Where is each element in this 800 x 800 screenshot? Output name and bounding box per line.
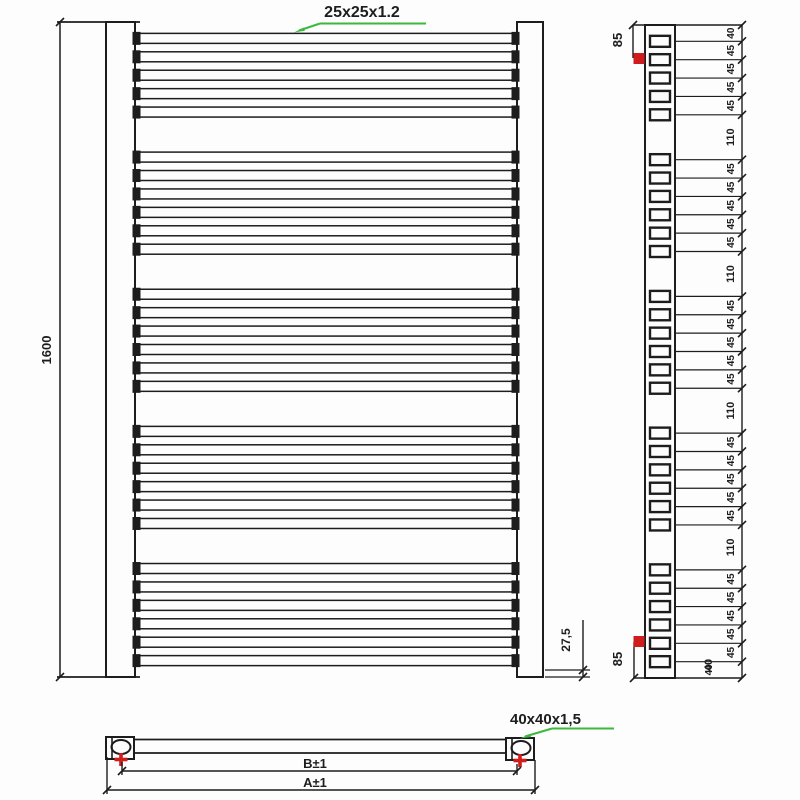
right-mount-cross (514, 759, 527, 763)
front-bar-left-nub (133, 380, 141, 393)
front-bar (135, 564, 517, 574)
b-dimension-label: B±1 (303, 756, 327, 771)
drawing-canvas: 160025x25x1.227,5 4045454545110454545454… (0, 0, 800, 800)
segment-dimension-label: 45 (726, 591, 737, 603)
front-bar (135, 600, 517, 610)
front-bar-right-nub (512, 517, 520, 530)
front-bar-right-nub (512, 361, 520, 374)
front-bar (135, 189, 517, 199)
front-bar-right-nub (512, 636, 520, 649)
tube-size-arrowhead (294, 28, 305, 33)
front-bar (135, 326, 517, 336)
left-mount-cross (115, 758, 128, 762)
height-dimension-label: 1600 (39, 336, 54, 365)
segment-dimension-label: 45 (726, 200, 737, 212)
front-bar-right-nub (512, 106, 520, 119)
segment-dimension-label: 45 (726, 355, 737, 367)
segment-dimension-label: 45 (726, 300, 737, 312)
side-bar (650, 209, 670, 220)
bottom-connection-offset-label: 85 (610, 652, 625, 666)
front-bar-left-nub (133, 462, 141, 475)
front-bar (135, 308, 517, 318)
segment-dimension-label: 45 (726, 510, 737, 522)
front-bar (135, 33, 517, 43)
side-bar (650, 583, 670, 594)
front-bar-left-nub (133, 87, 141, 100)
front-bar (135, 226, 517, 236)
front-bar-right-nub (512, 499, 520, 512)
segment-dimension-label: 45 (726, 63, 737, 75)
front-bar (135, 582, 517, 592)
front-bar-left-nub (133, 151, 141, 164)
front-bar-left-nub (133, 443, 141, 456)
segment-dimension-label: 110 (725, 539, 737, 557)
front-left-tube (106, 22, 135, 677)
side-bar (650, 173, 670, 184)
front-bar-left-nub (133, 224, 141, 237)
side-bar (650, 228, 670, 239)
front-bar (135, 463, 517, 473)
segment-dimension-label: 45 (726, 336, 737, 348)
segment-dimension-label: 110 (725, 265, 737, 283)
front-bar-right-nub (512, 187, 520, 200)
segment-dimension-label: 45 (726, 455, 737, 467)
front-bar-right-nub (512, 69, 520, 82)
front-bar-right-nub (512, 87, 520, 100)
segment-dimension-label: 45 (726, 45, 737, 57)
a-dimension-label: A±1 (303, 775, 327, 790)
segment-dimension-label: 45 (726, 81, 737, 93)
side-bar (650, 483, 670, 494)
front-bar-left-nub (133, 425, 141, 438)
segment-dimension-label: 45 (726, 473, 737, 485)
front-bar (135, 171, 517, 181)
side-bar (650, 601, 670, 612)
front-bar (135, 207, 517, 217)
front-bar-left-nub (133, 69, 141, 82)
radiator-technical-drawing: 160025x25x1.227,5 4045454545110454545454… (0, 0, 800, 800)
side-bar (650, 564, 670, 575)
front-bar (135, 363, 517, 373)
side-bar (650, 109, 670, 120)
segment-dimension-label: 45 (726, 646, 737, 658)
front-bar (135, 426, 517, 436)
front-bar-right-nub (512, 380, 520, 393)
front-bar (135, 637, 517, 647)
front-bar-left-nub (133, 187, 141, 200)
front-bar-left-nub (133, 580, 141, 593)
segment-dimension-label: 45 (726, 236, 737, 248)
front-bar-left-nub (133, 654, 141, 667)
front-bar-left-nub (133, 106, 141, 119)
front-bar-right-nub (512, 480, 520, 493)
front-bar (135, 52, 517, 62)
side-bar (650, 638, 670, 649)
side-bar (650, 154, 670, 165)
front-bar-left-nub (133, 562, 141, 575)
side-bar (650, 36, 670, 47)
front-bar (135, 107, 517, 117)
left-bracket-tube-section (112, 740, 131, 754)
tube-size-label: 25x25x1.2 (324, 4, 400, 21)
segment-dimension-label: 45 (726, 373, 737, 385)
front-bar-right-nub (512, 443, 520, 456)
front-bar-left-nub (133, 599, 141, 612)
segment-dimension-label: 45 (726, 610, 737, 622)
front-bar-right-nub (512, 325, 520, 338)
side-bar (650, 309, 670, 320)
front-bar-right-nub (512, 654, 520, 667)
top-view: B±1A±140x40x1,5 (103, 711, 614, 794)
bottom-connection-marker (634, 636, 645, 647)
segment-dimension-label: 45 (726, 573, 737, 585)
front-bar (135, 500, 517, 510)
side-bar (650, 73, 670, 84)
front-bar-right-nub (512, 288, 520, 301)
front-bar-left-nub (133, 306, 141, 319)
front-bar-right-nub (512, 306, 520, 319)
front-bar-left-nub (133, 288, 141, 301)
front-bar-left-nub (133, 617, 141, 630)
front-bar (135, 518, 517, 528)
segment-dimension-label: 45 (726, 100, 737, 112)
side-bar (650, 364, 670, 375)
front-bar (135, 619, 517, 629)
side-bar (650, 246, 670, 257)
front-bar-right-nub (512, 151, 520, 164)
bracket-size-label: 40x40x1,5 (510, 711, 581, 728)
front-bar-left-nub (133, 32, 141, 45)
segment-dimension-label: 40 (726, 27, 737, 39)
front-bar-right-nub (512, 617, 520, 630)
side-bar (650, 383, 670, 394)
segment-dimension-label: 45 (726, 491, 737, 503)
bottom-gap-label: 40 (703, 659, 715, 671)
front-bar (135, 656, 517, 666)
front-bar-left-nub (133, 517, 141, 530)
front-bar (135, 70, 517, 80)
front-bar-left-nub (133, 636, 141, 649)
side-bar (650, 191, 670, 202)
front-bar (135, 445, 517, 455)
front-bar-right-nub (512, 206, 520, 219)
side-bar (650, 291, 670, 302)
segment-dimension-label: 110 (725, 128, 737, 146)
side-bar (650, 464, 670, 475)
top-connection-offset-label: 85 (610, 33, 625, 47)
front-bar-left-nub (133, 206, 141, 219)
front-bar-right-nub (512, 599, 520, 612)
side-bar (650, 446, 670, 457)
front-bar (135, 89, 517, 99)
front-bar-right-nub (512, 32, 520, 45)
side-bar (650, 54, 670, 65)
front-bar (135, 244, 517, 254)
side-view: 4045454545110454545454511045454545451104… (610, 21, 746, 682)
side-bar (650, 501, 670, 512)
side-bar (650, 346, 670, 357)
segment-dimension-label: 45 (726, 436, 737, 448)
front-view: 160025x25x1.227,5 (39, 4, 590, 681)
front-bar-right-nub (512, 580, 520, 593)
front-bar-right-nub (512, 243, 520, 256)
front-right-tube (517, 22, 543, 677)
side-bar (650, 656, 670, 667)
front-bar-left-nub (133, 480, 141, 493)
side-bar (650, 328, 670, 339)
segment-dimension-label: 45 (726, 318, 737, 330)
front-bar-left-nub (133, 343, 141, 356)
front-bar-left-nub (133, 325, 141, 338)
front-bar-left-nub (133, 50, 141, 63)
segment-dimension-label: 110 (725, 402, 737, 420)
top-connection-marker (634, 53, 645, 64)
side-bar (650, 519, 670, 530)
front-bar-left-nub (133, 499, 141, 512)
front-bar (135, 152, 517, 162)
front-bar-right-nub (512, 169, 520, 182)
front-bar-right-nub (512, 562, 520, 575)
front-bar-right-nub (512, 224, 520, 237)
segment-dimension-label: 45 (726, 181, 737, 193)
bottom-offset-label: 27,5 (559, 628, 573, 652)
right-bracket-tube-section (512, 741, 531, 755)
front-bar (135, 345, 517, 355)
front-bar (135, 381, 517, 391)
front-bar-left-nub (133, 361, 141, 374)
front-bar-left-nub (133, 169, 141, 182)
front-bar (135, 482, 517, 492)
segment-dimension-label: 45 (726, 628, 737, 640)
front-bar (135, 289, 517, 299)
side-bar (650, 619, 670, 630)
front-bar-right-nub (512, 462, 520, 475)
side-bar (650, 428, 670, 439)
front-bar-right-nub (512, 425, 520, 438)
segment-dimension-label: 45 (726, 163, 737, 175)
front-bar-right-nub (512, 50, 520, 63)
segment-dimension-label: 45 (726, 218, 737, 230)
front-bar-left-nub (133, 243, 141, 256)
front-bar-right-nub (512, 343, 520, 356)
side-bar (650, 91, 670, 102)
